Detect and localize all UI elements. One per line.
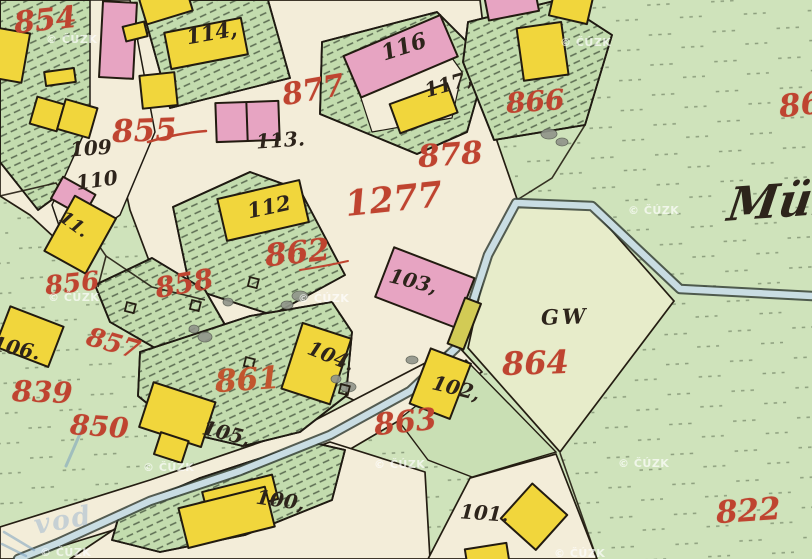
house-number-109: 109 (69, 137, 112, 160)
parcel-number-822: 822 (715, 494, 782, 529)
parcel-number-86-clipped: 86 (777, 88, 812, 123)
house-number-110: 110 (75, 167, 119, 193)
building-wood (44, 68, 76, 86)
cuzk-watermark: © ČÚZK (374, 458, 425, 471)
parcel-number-864: 864 (501, 346, 569, 380)
house-number-113: 113. (255, 128, 305, 151)
cuzk-watermark: © ČÚZK (554, 547, 605, 559)
cuzk-watermark: © ČÚZK (143, 461, 194, 474)
stream-name-label: Mül (725, 174, 812, 228)
parcel-number-862: 862 (264, 235, 332, 273)
house-number-101: 101. (459, 501, 509, 524)
cuzk-watermark: © ČÚZK (618, 457, 669, 470)
house-number-100: 100, (255, 487, 306, 514)
parcel-number-855: 855 (111, 115, 177, 148)
parcel-number-839: 839 (12, 377, 74, 408)
cuzk-watermark: © ČÚZK (46, 33, 97, 46)
cuzk-watermark: © ČÚZK (560, 36, 611, 49)
parcel-number-850: 850 (69, 411, 129, 443)
parcel-number-863: 863 (373, 405, 438, 441)
cuzk-watermark: © ČÚZK (298, 292, 349, 305)
parcel-number-861: 861 (214, 363, 281, 398)
parcel-number-1277: 1277 (343, 177, 444, 222)
cadastral-map-canvas[interactable]: 854 855 877 878 866 86 1277 862 858 856 … (0, 0, 812, 559)
parcel-number-878: 878 (417, 138, 484, 173)
cuzk-watermark: © ČÚZK (48, 291, 99, 304)
parcel-number-866: 866 (505, 86, 565, 118)
cuzk-watermark: © ČÚZK (40, 546, 91, 559)
cuzk-watermark: © ČÚZK (628, 204, 679, 217)
building-wood-866 (517, 22, 569, 81)
landuse-gw-label: GW (541, 305, 589, 328)
building-wood (139, 72, 177, 108)
